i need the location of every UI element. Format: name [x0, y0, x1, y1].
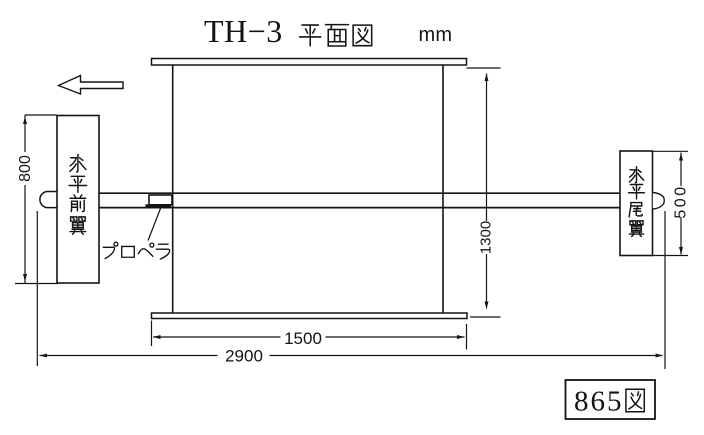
svg-text:800: 800: [17, 155, 34, 182]
svg-text:1500: 1500: [284, 329, 322, 348]
svg-text:2900: 2900: [225, 347, 263, 366]
svg-text:mm: mm: [419, 24, 453, 46]
svg-text:865: 865: [574, 386, 624, 418]
svg-text:500: 500: [672, 184, 689, 218]
svg-text:1300: 1300: [478, 221, 495, 254]
svg-text:TH−3: TH−3: [204, 13, 283, 49]
